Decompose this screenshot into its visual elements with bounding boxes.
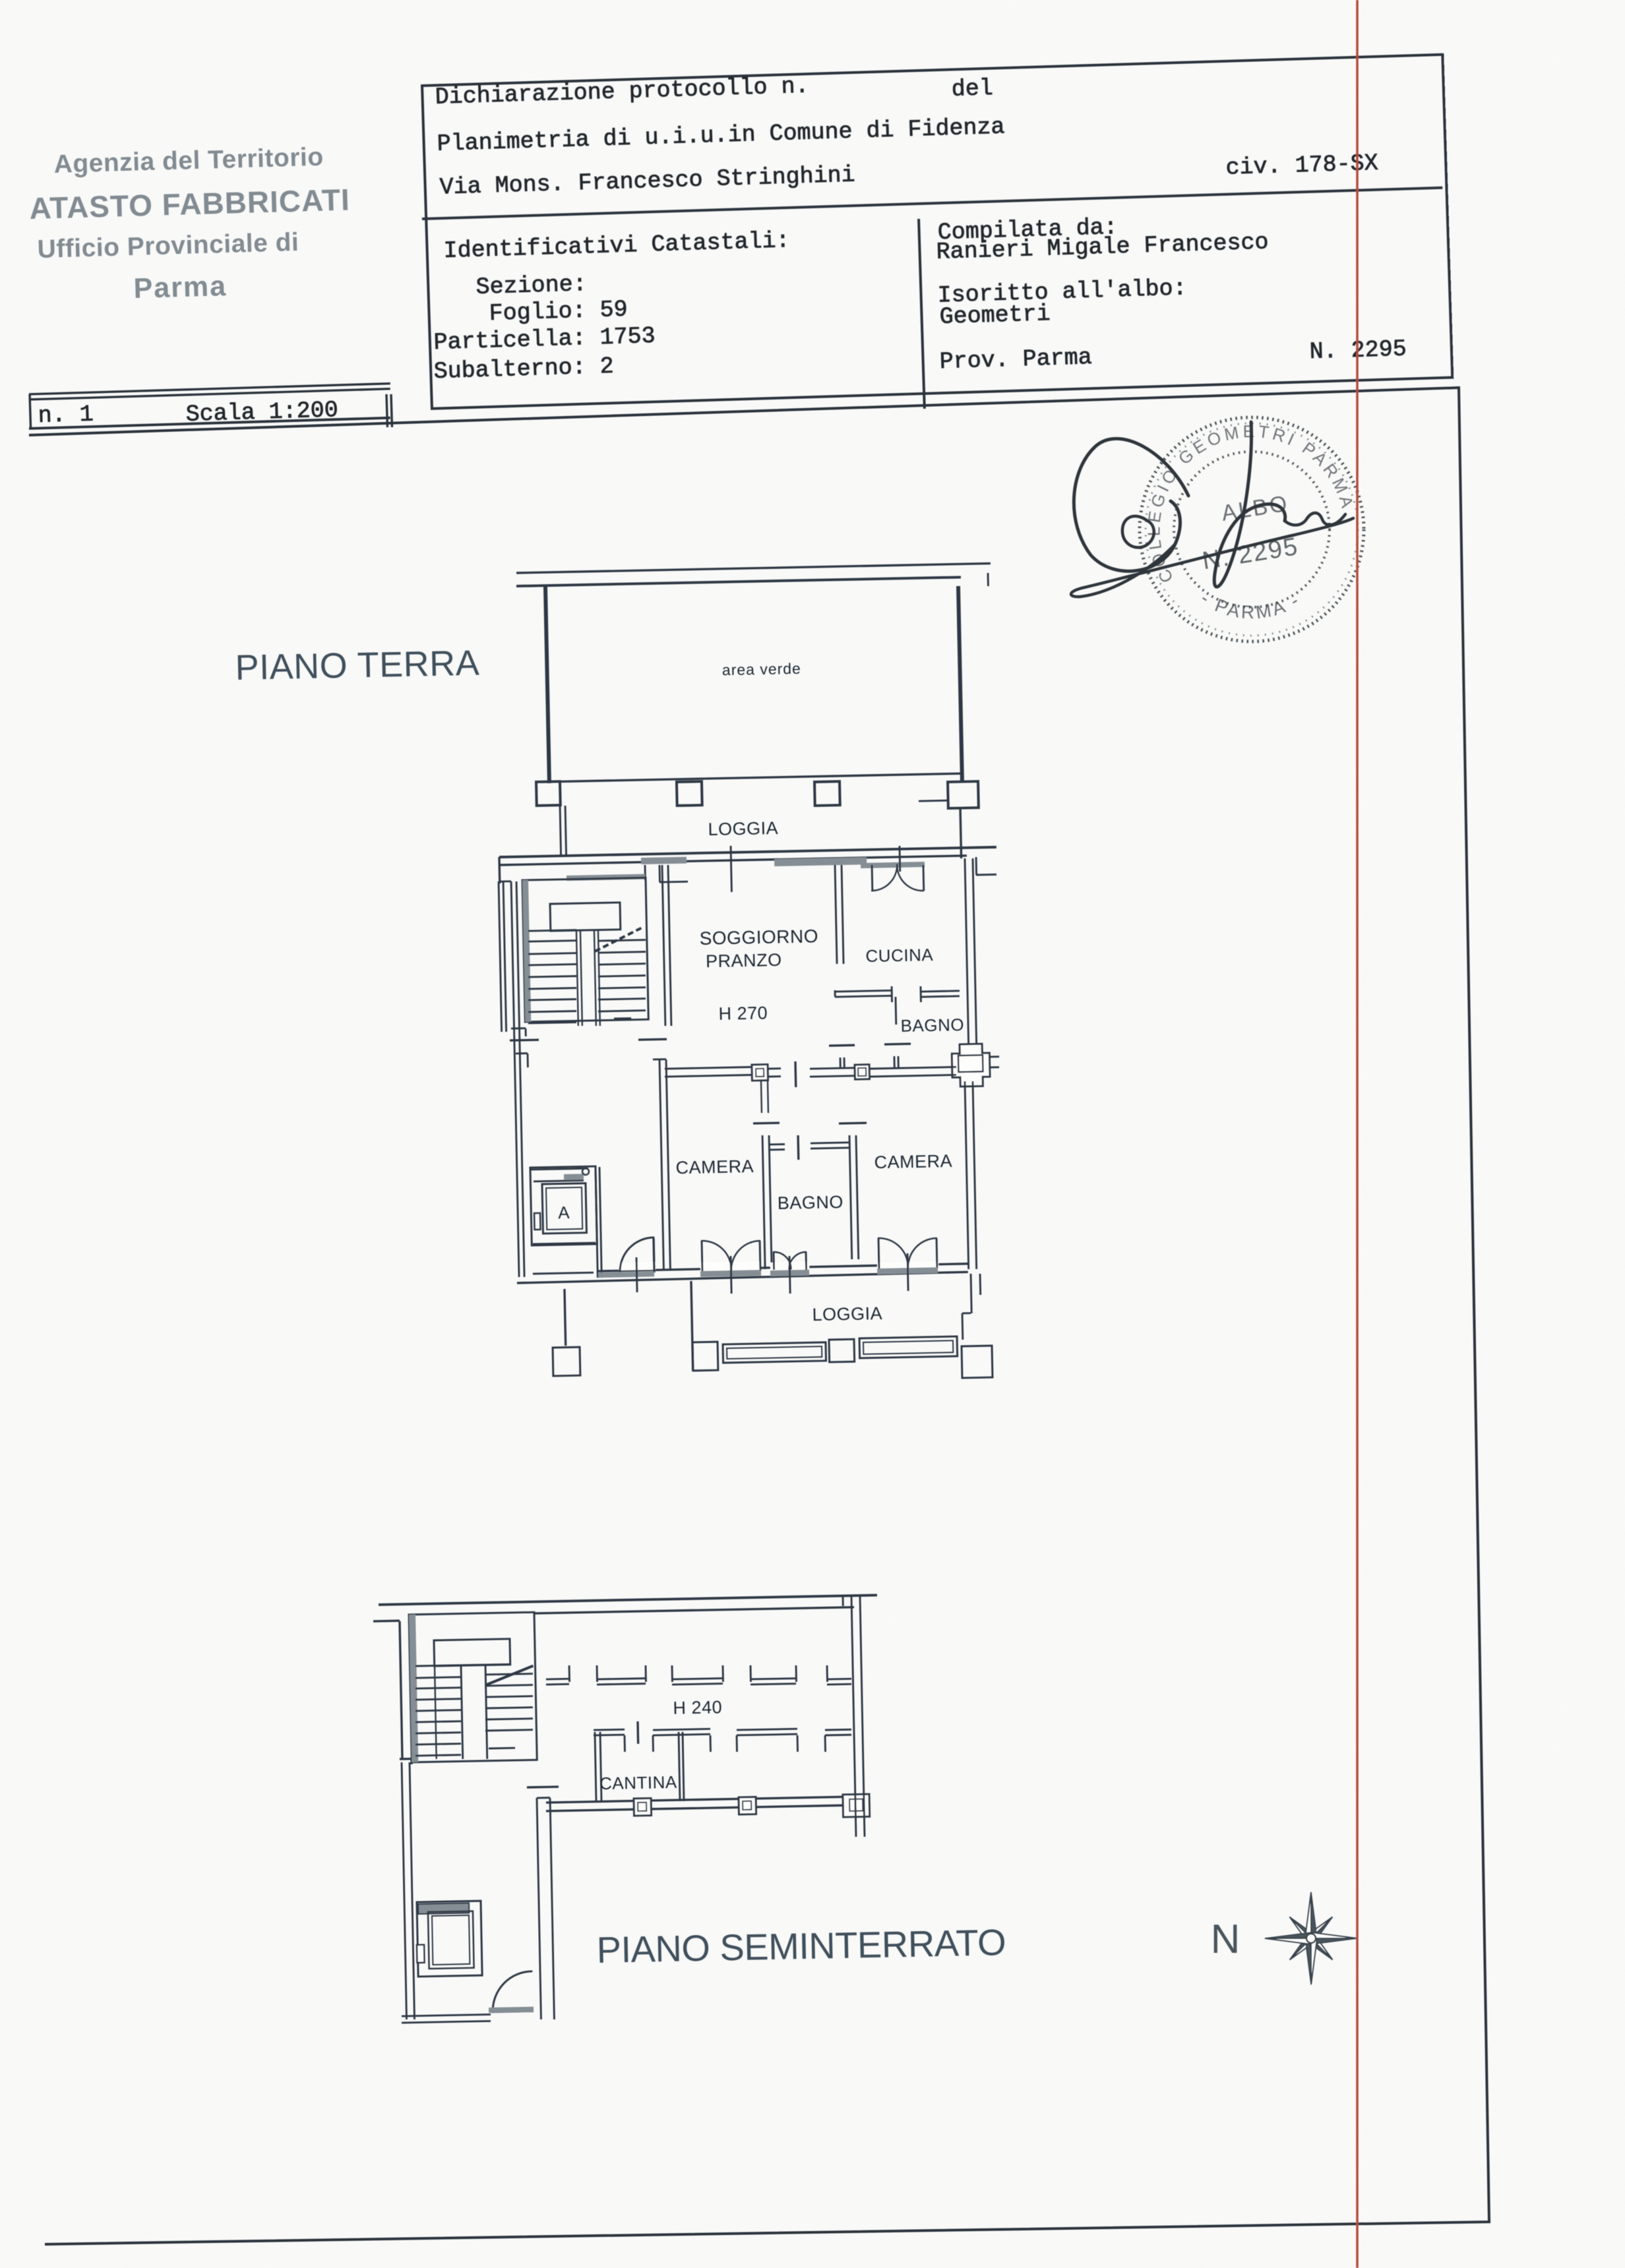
svg-text:Subalterno: 2: Subalterno: 2	[433, 353, 614, 385]
svg-text:SOGGIORNO: SOGGIORNO	[699, 926, 818, 949]
svg-text:Scala 1:200: Scala 1:200	[185, 397, 338, 428]
svg-text:CAMERA: CAMERA	[874, 1151, 952, 1172]
svg-text:Sezione:: Sezione:	[475, 271, 587, 301]
svg-text:Geometri: Geometri	[939, 301, 1051, 330]
svg-text:LOGGIA: LOGGIA	[708, 818, 778, 839]
svg-text:PIANO TERRA: PIANO TERRA	[235, 643, 480, 688]
svg-text:LOGGIA: LOGGIA	[812, 1303, 882, 1325]
svg-text:civ. 178-SX: civ. 178-SX	[1225, 150, 1378, 181]
svg-text:N: N	[1211, 1917, 1241, 1962]
svg-text:area verde: area verde	[722, 660, 801, 678]
svg-text:Parma: Parma	[133, 270, 228, 305]
svg-text:H 240: H 240	[673, 1697, 722, 1717]
svg-text:PRANZO: PRANZO	[706, 950, 782, 971]
svg-text:n. 1: n. 1	[38, 401, 94, 429]
svg-text:CUCINA: CUCINA	[865, 945, 933, 966]
svg-text:del: del	[951, 75, 993, 103]
svg-text:H 270: H 270	[718, 1003, 768, 1023]
svg-text:A: A	[558, 1203, 570, 1222]
svg-text:BAGNO: BAGNO	[900, 1015, 964, 1036]
svg-text:PIANO SEMINTERRATO: PIANO SEMINTERRATO	[596, 1921, 1006, 1971]
svg-text:Prov. Parma: Prov. Parma	[939, 344, 1092, 375]
svg-text:CAMERA: CAMERA	[675, 1156, 754, 1178]
svg-text:BAGNO: BAGNO	[777, 1192, 843, 1213]
svg-text:Foglio: 59: Foglio: 59	[489, 297, 628, 327]
svg-text:CANTINA: CANTINA	[599, 1772, 677, 1793]
